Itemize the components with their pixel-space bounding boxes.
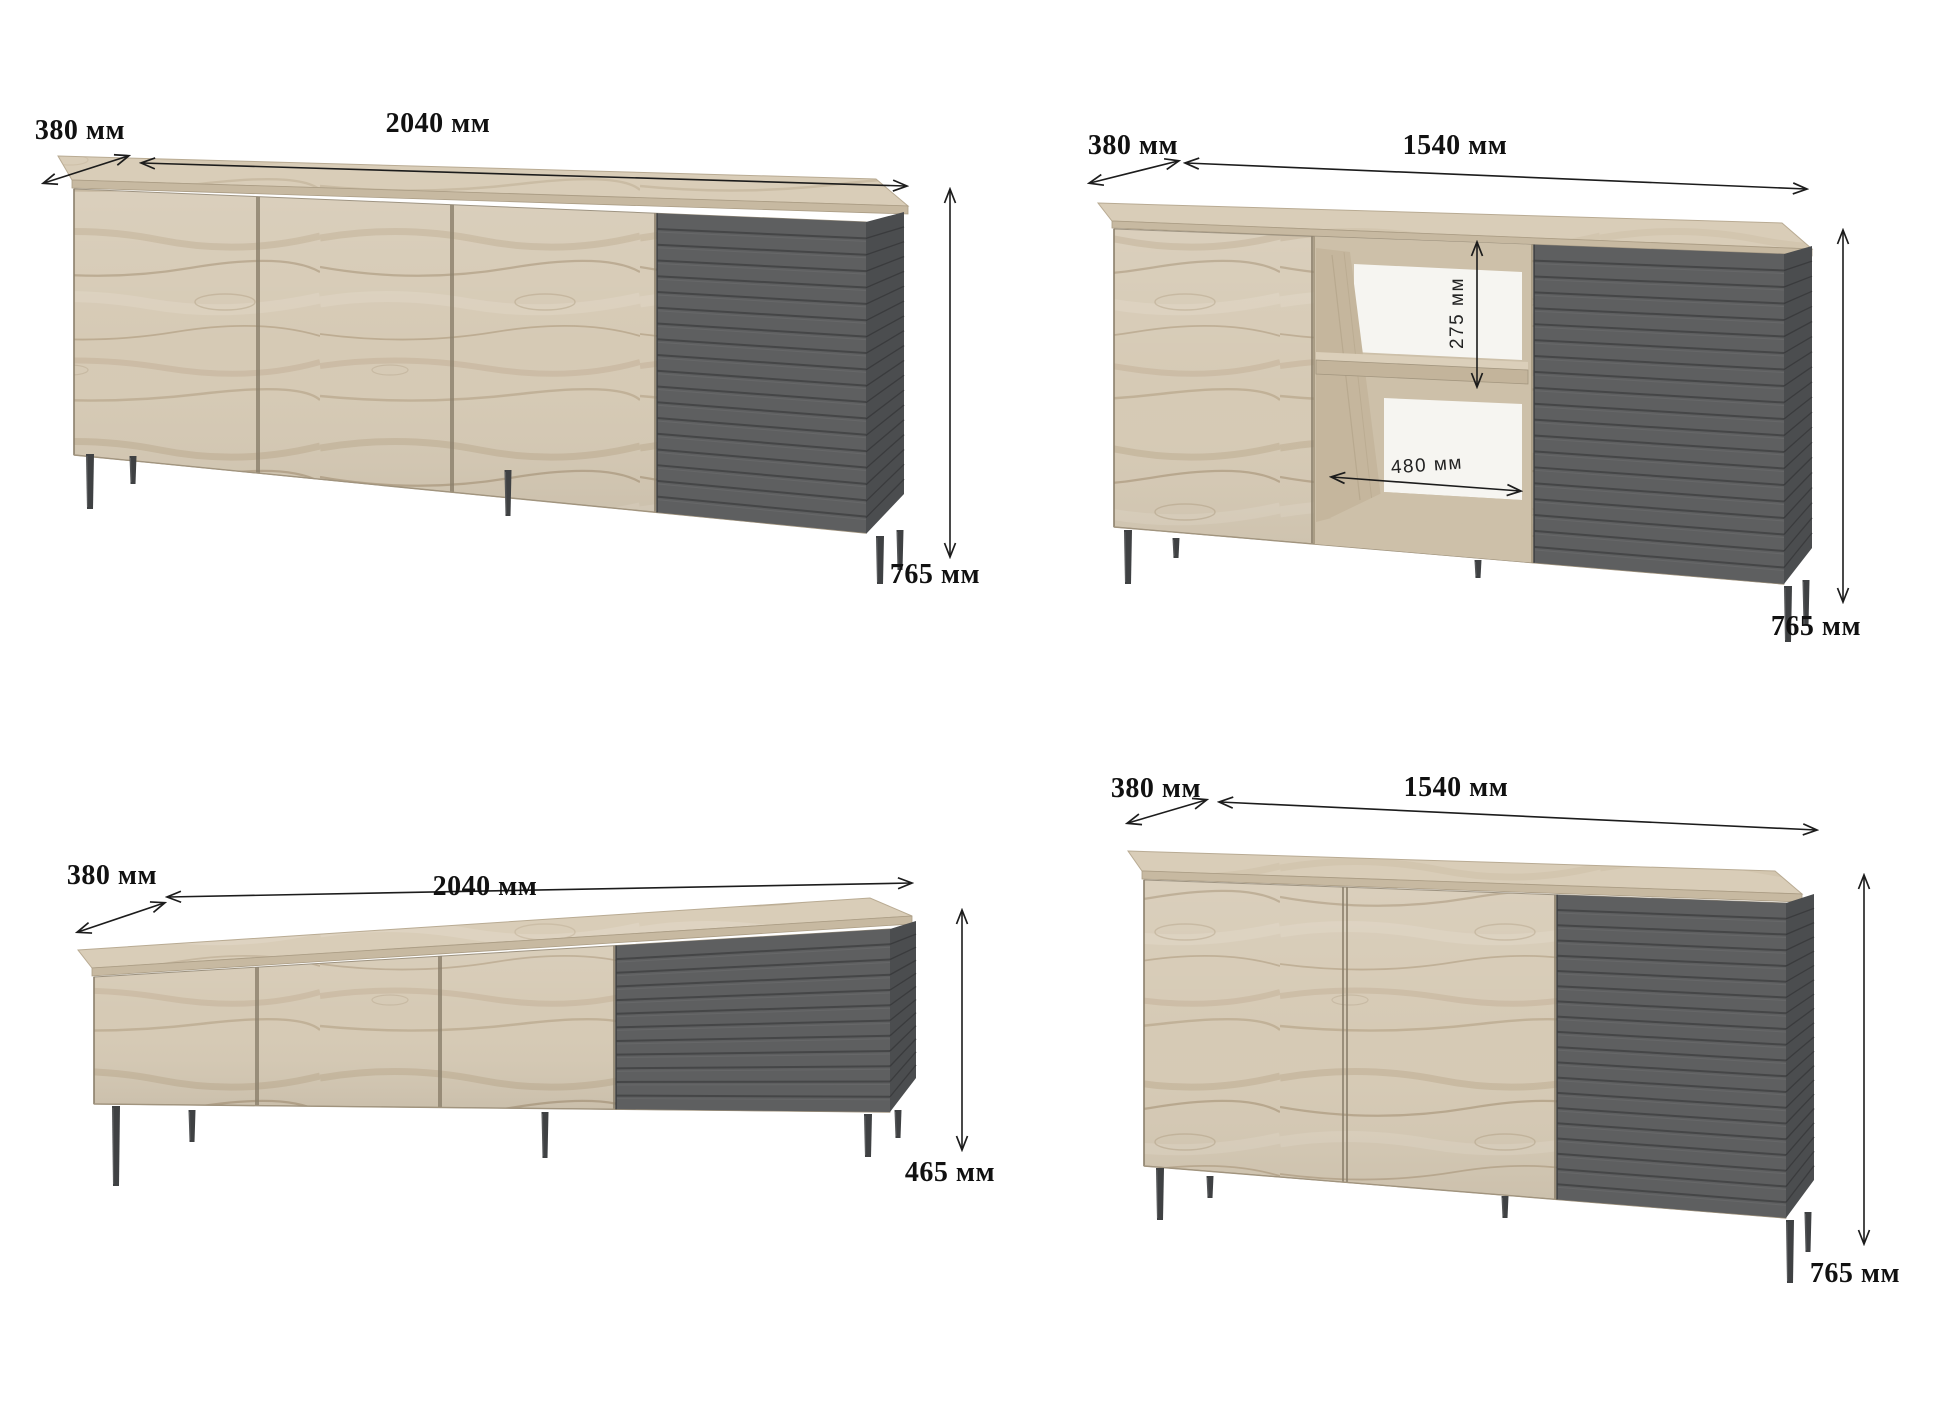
- dim-label-height-piece4: 765 мм: [1810, 1258, 1900, 1290]
- dim-label-shelf-height-piece2: 275 мм: [1447, 277, 1469, 349]
- dim-label-height-piece3: 465 мм: [905, 1157, 995, 1189]
- dim-label-depth-piece1: 380 мм: [35, 115, 125, 147]
- furniture-sideboard-1540-open-shelf-h765: [1090, 161, 1843, 642]
- dim-label-width-piece2: 1540 мм: [1403, 130, 1508, 162]
- dim-label-depth-piece2: 380 мм: [1088, 130, 1178, 162]
- furniture-sideboard-2040-h765: [44, 156, 950, 584]
- furniture-tv-stand-2040-h465: [78, 883, 962, 1186]
- furniture-illustrations: [0, 0, 1950, 1425]
- furniture-dimensions-diagram: 380 мм 2040 мм 765 мм 380 мм 1540 мм 275…: [0, 0, 1950, 1425]
- dim-label-width-piece3: 2040 мм: [433, 871, 538, 903]
- dim-label-width-piece1: 2040 мм: [386, 108, 491, 140]
- dim-label-depth-piece4: 380 мм: [1111, 773, 1201, 805]
- dim-label-depth-piece3: 380 мм: [67, 860, 157, 892]
- dim-label-height-piece2: 765 мм: [1771, 611, 1861, 643]
- furniture-sideboard-1540-h765: [1128, 800, 1864, 1283]
- dim-label-width-piece4: 1540 мм: [1404, 772, 1509, 804]
- dim-label-height-piece1: 765 мм: [890, 559, 980, 591]
